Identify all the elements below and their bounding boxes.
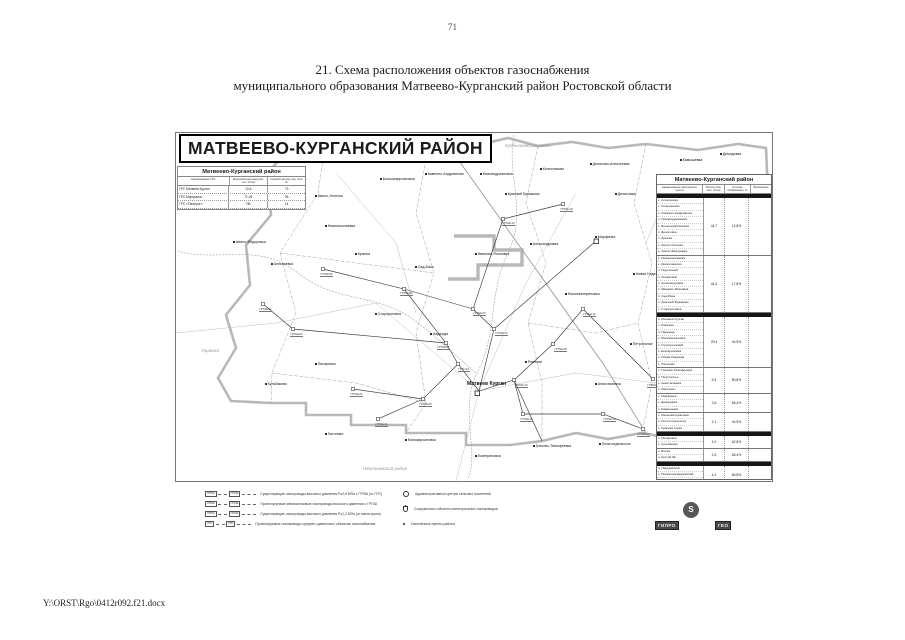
settlement-name-list: с. Алексеевках. Колесниковос. Каменно-Ан… [657, 198, 704, 255]
legend-label: Существующие газопроводы высокого давлен… [260, 492, 382, 496]
settlement-name: х. Камышевка [657, 407, 703, 412]
legend-line-sample [242, 514, 256, 515]
grs-table-title: Матвеево-Курганский район [178, 167, 305, 177]
note-cell [749, 394, 771, 412]
gas-consumption-value: 2,6 [704, 449, 725, 461]
grs-table-row: ГРС «Таганрог»ПВ14 [178, 201, 305, 209]
legend-tag: ГРПШ [229, 501, 241, 506]
settlement-name-list: п. Матвеев Курганс. Ряженоеп. Надеждас. … [657, 317, 704, 367]
note-cell [749, 256, 771, 313]
legend-tag: ГРПШ [229, 511, 241, 516]
legend-tag: ГРП [205, 521, 214, 526]
settlement-name-list: х. Писаревкас. Кульбаково [657, 436, 704, 448]
settlement-name-list: с. Новониколаевках. Шапошниковоп. Подлес… [657, 256, 704, 313]
settlement-group-row: с. Марфинках. Демидовках. Камышевка2,665… [657, 394, 771, 413]
legend-label: Проектируемые межпоселковые газопроводы … [260, 502, 377, 506]
grs-table-row: ГРС Матвеев Курган10,673 [178, 186, 305, 194]
grs-cell: 73 [268, 186, 305, 193]
legend-row-symbol: Сооружения и объекты магистральных газоп… [403, 505, 498, 513]
settlement-group-row: с. Алексеевках. Колесниковос. Каменно-Ан… [657, 198, 771, 256]
grs-header-cell: Наименование ГРС [178, 177, 230, 185]
river-mius [468, 135, 517, 479]
flask-symbol-icon [403, 506, 408, 513]
document-title-line1: 21. Схема расположения объектов газоснаб… [0, 62, 905, 78]
settlement-name-list: п. Гвардейскийх. Новоалександровскийх. Д… [657, 466, 704, 480]
settlement-group-row: с. Греково-Тимофеевках. Петропольес. Ана… [657, 368, 771, 394]
note-cell [749, 198, 771, 255]
gas-consumption-value: 2,6 [704, 394, 725, 412]
grs-header-cell: Максимальная нагрузка, тыс. м³/час [230, 177, 269, 185]
gas-consumption-value: 29,4 [704, 317, 725, 367]
note-cell [749, 368, 771, 393]
settlement-name: х. Староротовка [657, 307, 703, 312]
grs-cell: ГРС «Таганрог» [178, 201, 229, 208]
settlement-name-list: с. Марфинках. Демидовках. Камышевка [657, 394, 704, 412]
selsovet-boundaries [271, 141, 652, 441]
gasification-percent: 80,8% [725, 368, 749, 393]
gas-consumption-value: 9,4 [704, 368, 725, 393]
settlements-table: Матвеево-Курганский районНаименование на… [656, 174, 772, 480]
grs-cell: 14 [268, 201, 305, 208]
legend-line-sample [218, 504, 227, 505]
settlement-name-list: х. Малоекатериновкас. Политотдельскоех. … [657, 413, 704, 431]
legend-line-sample [237, 524, 251, 525]
legend-line-sample [218, 494, 227, 495]
gasification-percent: 44,9% [725, 317, 749, 367]
note-cell [749, 466, 771, 480]
gasification-percent: 44,9% [725, 413, 749, 431]
gas-consumption-value: 4,1 [704, 466, 725, 480]
grs-cell: 71,45 [229, 194, 268, 201]
settlement-group-row: п. Гвардейскийх. Новоалександровскийх. Д… [657, 466, 771, 480]
legend-tag: ГРПШ [205, 501, 217, 506]
legend-label: Населённые пункты района [411, 522, 455, 526]
settlements-header-cell: Примечание [751, 185, 771, 193]
file-path-footer: Y:\ORST\Rgo\0412r092.f21.docx [43, 598, 165, 608]
settlement-name: с. Латоново [657, 362, 703, 367]
settlement-name: п. Крутой Яр [657, 455, 703, 460]
legend-line-sample [216, 524, 225, 525]
settlement-name: х. Авило-Фёдоровка [657, 249, 703, 254]
legend-row-symbol: Населённые пункты района [403, 520, 455, 528]
settlement-name: х. Марченко [657, 387, 703, 392]
legend-label: Проектируемые газопроводы среднего давле… [255, 522, 375, 526]
legend-label: Сооружения и объекты магистральных газоп… [414, 507, 498, 511]
legend-tag: ГРПШ [205, 511, 217, 516]
grs-cell: ГРС Марфинка [178, 194, 229, 201]
note-cell [749, 436, 771, 448]
legend-label: Существующие газопроводы высокого давлен… [260, 512, 380, 516]
logo-text-left: ГИПРО [655, 521, 679, 530]
settlement-name-list: х. Балкап. Крутой Яр [657, 449, 704, 461]
settlements-header-cell: Наименование населенного пункта [657, 185, 703, 193]
circle-symbol-icon [403, 491, 409, 497]
gas-consumption-value: 44,2 [704, 256, 725, 313]
grs-table-row: ГРС Марфинка71,4596 [178, 194, 305, 202]
grs-table: Матвеево-Курганский районНаименование ГР… [177, 166, 306, 210]
legend-line-sample [242, 504, 256, 505]
settlement-name: х. Красная Горка [657, 426, 703, 431]
gasification-percent: 17,8% [725, 256, 749, 313]
settlement-group-row: х. Малоекатериновкас. Политотдельскоех. … [657, 413, 771, 432]
settlements-header-cell: Расход газа, млн. м³/год [703, 185, 725, 193]
legend-tag: ГРП [226, 521, 235, 526]
grs-cell: 96 [268, 194, 305, 201]
gasification-percent: 12,8% [725, 198, 749, 255]
dot-symbol-icon [403, 523, 405, 525]
settlements-table-title: Матвеево-Курганский район [657, 175, 771, 185]
legend-tag: ГРПШ [205, 491, 217, 496]
legend-line-sample [218, 514, 227, 515]
gas-consumption-value: 44,7 [704, 198, 725, 255]
settlement-group-row: с. Новониколаевках. Шапошниковоп. Подлес… [657, 256, 771, 314]
document-page: { "page": { "number": "71", "title_line1… [0, 0, 905, 640]
legend-row-line: ГРПШГРПШСуществующие газопроводы высоког… [205, 490, 382, 498]
settlement-name: х. Денисово-Николаевка [657, 478, 703, 480]
settlements-table-header: Наименование населенного пунктаРасход га… [657, 185, 771, 194]
grs-cell: ГРС Матвеев Курган [178, 186, 229, 193]
settlements-header-cell: Степень газификации, % [725, 185, 750, 193]
grs-cell: ПВ [229, 201, 268, 208]
legend-row-line: ГРПШГРПШСуществующие газопроводы высоког… [205, 510, 381, 518]
note-cell [749, 317, 771, 367]
settlement-group-row: п. Матвеев Курганс. Ряженоеп. Надеждас. … [657, 317, 771, 368]
legend-row-line: ГРПШГРПШПроектируемые межпоселковые газо… [205, 500, 377, 508]
grs-cell: 10,6 [229, 186, 268, 193]
gas-consumption-value: 2,1 [704, 413, 725, 431]
document-title-line2: муниципального образования Матвеево-Кург… [0, 78, 905, 94]
gasification-percent: 65,4% [725, 394, 749, 412]
logo-text-right: ГЕО [715, 521, 731, 530]
map-title: МАТВЕЕВО-КУРГАНСКИЙ РАЙОН [179, 134, 492, 163]
grs-header-cell: Годовой расход газа, млн. м³ [268, 177, 305, 185]
note-cell [749, 449, 771, 461]
legend-tag: ГРПШ [229, 491, 241, 496]
gas-consumption-value: 4,0 [704, 436, 725, 448]
legend-row-line: ГРПГРППроектируемые газопроводы среднего… [205, 520, 375, 528]
legend-row-symbol: Административные центры сельских поселен… [403, 490, 491, 498]
gasification-percent: 65,4% [725, 449, 749, 461]
company-logo: Ѕ ГИПРО ГЕО [655, 502, 750, 536]
gasification-percent: 80,8% [725, 466, 749, 480]
settlement-group-row: х. Балкап. Крутой Яр2,665,4% [657, 449, 771, 462]
grs-table-header: Наименование ГРСМаксимальная нагрузка, т… [178, 177, 305, 186]
map-figure: МАТВЕЕВО-КУРГАНСКИЙ РАЙОН Матвеево-Курга… [175, 130, 780, 542]
settlement-name-list: с. Греково-Тимофеевках. Петропольес. Ана… [657, 368, 704, 393]
legend-label: Административные центры сельских поселен… [415, 492, 491, 496]
settlement-name: с. Кульбаково [657, 442, 703, 447]
legend-line-sample [242, 494, 256, 495]
gasification-percent: 62,8% [725, 436, 749, 448]
page-number: 71 [0, 22, 905, 32]
river-krynka [178, 251, 476, 373]
note-cell [749, 413, 771, 431]
logo-emblem: Ѕ [683, 502, 699, 518]
settlement-group-row: х. Писаревкас. Кульбаково4,062,8% [657, 436, 771, 449]
